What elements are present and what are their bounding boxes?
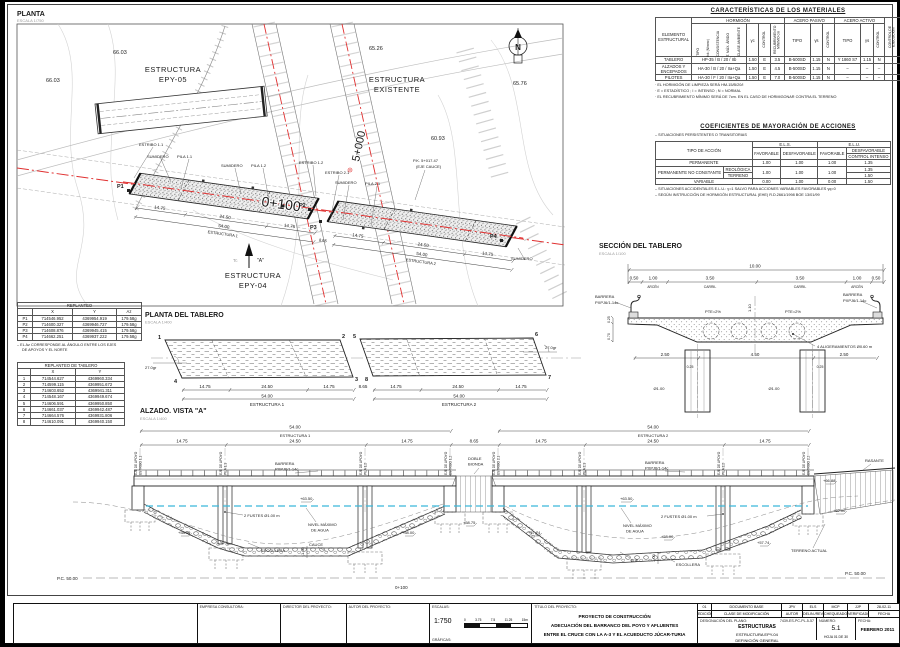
table-cell: 1.15	[810, 63, 823, 75]
svg-text:0.25: 0.25	[687, 365, 694, 369]
project-title-line: PROYECTO DE CONSTRUCCIÓN	[532, 612, 697, 621]
fecha-cell: FECHA: FEBRERO 2011	[856, 618, 899, 640]
coef-value: 0.00	[752, 179, 780, 185]
rev-value: MCP	[824, 604, 848, 611]
table-cell: 4.5	[770, 63, 784, 75]
table-cell: HA-30 / F / 20 / IIa+Qa	[692, 75, 747, 81]
field-label: ESCALAS:	[432, 605, 450, 609]
project-title-line: ENTRE EL CRUCE CON LA A-3 Y EL ACUEDUCTO…	[532, 630, 697, 639]
rotated-header: CONSISTENCIA	[717, 31, 721, 56]
slope-label: PTE=2%	[705, 309, 721, 314]
elevation-drawing: ALZADO. VISTA "A" ESCALA 1/400 54.00 EST…	[13, 402, 900, 598]
table-cell: P4	[18, 334, 33, 340]
field-label: GRÁFICAS:	[432, 638, 451, 642]
svg-text:PXPJ6/1-14c: PXPJ6/1-14c	[645, 466, 668, 471]
svg-text:BARRERA: BARRERA	[275, 461, 295, 466]
svg-text:3: 3	[355, 377, 358, 383]
epy05-label-1: ESTRUCTURA	[145, 65, 201, 74]
svg-text:ESTRIBO 1.1: ESTRIBO 1.1	[139, 455, 143, 475]
engineering-drawing-sheet: { "plan": { "title": "PLANTA", "scale": …	[0, 0, 900, 647]
table-cell: –	[861, 63, 874, 75]
svg-text:TERRENO ACTUAL: TERRENO ACTUAL	[791, 548, 828, 553]
svg-text:P3: P3	[310, 225, 317, 231]
svg-text:1.00: 1.00	[651, 553, 656, 562]
svg-text:EJE DE APOYO: EJE DE APOYO	[219, 451, 223, 475]
svg-text:0.50: 0.50	[872, 276, 881, 281]
materials-table-block: CARACTERÍSTICAS DE LOS MATERIALES ELEMEN…	[655, 8, 900, 100]
svg-text:14.75: 14.75	[515, 384, 527, 389]
drawing-sheet: PLANTA ESCALA 1/750	[5, 2, 897, 643]
signature-box	[14, 604, 198, 643]
rotated-header: RECUBRIMIENTO MÍNIMO cm	[774, 25, 781, 55]
existente-label-1: ESTRUCTURA	[369, 75, 425, 84]
svg-text:65.76: 65.76	[513, 81, 527, 87]
coefficients-block: COEFICIENTES DE MAYORACIÓN DE ACCIONES –…	[655, 124, 900, 199]
table-cell: 1.50	[746, 63, 759, 75]
svg-text:P.K. 5+017.47: P.K. 5+017.47	[413, 158, 439, 163]
svg-text:ESTRUCTURA 1: ESTRUCTURA 1	[280, 433, 311, 438]
replanteo-block: REPLANTEO X Y Az P1714546.9524369954.919…	[17, 302, 142, 354]
deck-cross-section	[628, 318, 883, 342]
col-header: TIPO fck (N/mm²) CONSISTENCIA T. MÁX. ÁR…	[692, 24, 747, 57]
field-label: NÚMERO:	[819, 619, 836, 623]
svg-text:"A": "A"	[257, 258, 264, 264]
field-label: DIRECTOR DEL PROYECTO:	[283, 605, 332, 609]
plan-scale: ESCALA 1/750	[17, 18, 44, 23]
svg-text:2.50: 2.50	[661, 352, 670, 357]
svg-text:BARRERA: BARRERA	[843, 292, 863, 297]
replanteo-table: REPLANTEO X Y Az P1714546.9524369954.919…	[17, 302, 142, 341]
svg-text:+66.88: +66.88	[823, 478, 836, 483]
barrier-left	[629, 295, 640, 318]
svg-text:1: 1	[158, 335, 161, 341]
deck-2-elevation	[492, 470, 814, 486]
col-header: DESFAVORABLE	[846, 147, 890, 153]
datum-station: 0+100	[395, 585, 408, 590]
svg-text:DOBLE: DOBLE	[468, 456, 482, 461]
elevation-labels: BARRERA PXPJ6/1-14c BARRERA PXPJ6/1-14c …	[178, 456, 884, 567]
svg-text:2.50: 2.50	[840, 352, 849, 357]
project-title-cell: TÍTULO DEL PROYECTO: PROYECTO DE CONSTRU…	[532, 604, 698, 643]
col-header: ELEMENTO ESTRUCTURAL	[656, 18, 692, 57]
col-header: CONTROL INTENSO	[846, 154, 890, 160]
elevation-scale: ESCALA 1/400	[140, 416, 167, 421]
svg-text:BARRERA: BARRERA	[645, 460, 665, 465]
svg-text:PXPJ6/1-14c: PXPJ6/1-14c	[275, 467, 298, 472]
materials-title: CARACTERÍSTICAS DE LOS MATERIALES	[655, 8, 900, 14]
svg-text:65.26: 65.26	[369, 46, 383, 52]
svg-text:4.50: 4.50	[751, 352, 760, 357]
plan-name-lines: ESTRUCTURAS ESTRUCTURA EPY-04 DEFINICIÓN…	[698, 624, 816, 644]
svg-text:ESTRIBO 1.1: ESTRIBO 1.1	[139, 142, 164, 147]
table-cell: PILOTES	[656, 75, 692, 81]
project-title-lines: PROYECTO DE CONSTRUCCIÓN ADECUACIÓN DEL …	[532, 612, 697, 640]
epy04-label-1: ESTRUCTURA	[225, 271, 281, 280]
svg-text:2 FUSTES Ø1.00 m: 2 FUSTES Ø1.00 m	[661, 514, 697, 519]
svg-text:24.50: 24.50	[261, 384, 273, 389]
rotated-header: fck (N/mm²)	[707, 39, 711, 57]
svg-text:0.50: 0.50	[630, 276, 639, 281]
table-cell: N	[823, 75, 834, 81]
col-header: CONTROL	[759, 24, 770, 57]
svg-text:ARCÉN: ARCÉN	[647, 284, 659, 289]
rev-label: AUTOR	[782, 611, 803, 618]
table-cell: –	[873, 75, 884, 81]
svg-text:8.65: 8.65	[359, 384, 368, 389]
project-title-line: ADECUACIÓN DEL BARRANCO DEL POYO Y AFLUE…	[532, 621, 697, 630]
table-cell: B-500SD	[784, 63, 810, 75]
table-cell: E	[759, 75, 770, 81]
svg-text:+58.00: +58.00	[661, 534, 674, 539]
epy04-label-2: EPY-04	[239, 281, 267, 290]
svg-text:14.75: 14.75	[535, 439, 547, 444]
svg-text:BIONDA: BIONDA	[468, 462, 484, 467]
svg-text:8.65: 8.65	[470, 439, 479, 444]
coefs-title: COEFICIENTES DE MAYORACIÓN DE ACCIONES	[655, 124, 900, 130]
svg-text:1.00: 1.00	[300, 546, 305, 555]
table-row: PILOTESHA-30 / F / 20 / IIa+Qa1.50E7.0B-…	[656, 75, 900, 81]
svg-text:3.50: 3.50	[706, 276, 715, 281]
svg-text:14.75: 14.75	[199, 384, 211, 389]
title-block: EMPRESA CONSULTORA: DIRECTOR DEL PROYECT…	[13, 603, 900, 644]
deck-plan-dim-lines	[182, 388, 549, 401]
col-header: TIPO DE ACCIÓN	[656, 141, 753, 160]
svg-text:P2: P2	[299, 203, 306, 209]
designacion-cell: DESIGNACIÓN DEL PLANO: 7439-ES-PC-PL-5-5…	[698, 618, 817, 640]
svg-text:PILA 2.1: PILA 2.1	[365, 181, 381, 186]
table-row: ALZADOS Y ENCEPADOSHA-30 / B / 20 / IIa+…	[656, 63, 900, 75]
epy05-label-2: EPY-05	[159, 75, 187, 84]
edge-depth-dims: 0.25 0.70	[607, 316, 613, 342]
table-cell: N	[823, 63, 834, 75]
elevation-dims: 54.00 ESTRUCTURA 1 54.00 ESTRUCTURA 2 14…	[176, 425, 771, 444]
table-cell: 1.50	[746, 75, 759, 81]
field-label: EMPRESA CONSULTORA:	[200, 605, 244, 609]
table-cell: I	[885, 63, 900, 75]
svg-text:RASANTE: RASANTE	[865, 458, 884, 463]
col-header: FAVORABLE	[752, 147, 780, 160]
plan-number: 5.1	[817, 625, 855, 632]
row-label: PERMANENTE NO CONSTANTE	[656, 166, 724, 179]
svg-text:+58.75: +58.75	[463, 520, 476, 525]
rotated-header: TIPO	[697, 48, 701, 56]
svg-text:54.00: 54.00	[289, 425, 301, 430]
svg-text:24.50: 24.50	[647, 439, 659, 444]
rev-value: JJP	[848, 604, 869, 611]
svg-text:14.75: 14.75	[759, 439, 771, 444]
rev-label: DELIN./REV.	[803, 611, 824, 618]
col-header: γs	[861, 24, 874, 57]
plan-date: FEBRERO 2011	[856, 627, 899, 632]
plan-view-drawing: PLANTA ESCALA 1/750	[13, 10, 568, 308]
svg-text:54.00: 54.00	[261, 394, 273, 399]
table-cell: 7.0	[770, 75, 784, 81]
coefs-subtitle: – SITUACIONES PERSISTENTES O TRANSITORIA…	[655, 133, 900, 139]
svg-text:54.00: 54.00	[647, 425, 659, 430]
right-ramp	[814, 470, 893, 514]
svg-text:0.70: 0.70	[607, 333, 611, 340]
svg-text:+57.74: +57.74	[757, 540, 770, 545]
coef-value: 1.00	[781, 166, 818, 179]
svg-text:5: 5	[353, 334, 356, 340]
svg-text:14.75: 14.75	[390, 384, 402, 389]
coefs-note: – SEGÚN INSTRUCCIÓN DE HORMIGÓN ESTRUCTU…	[655, 193, 900, 199]
table-cell: I	[885, 75, 900, 81]
rev-label: FECHA	[869, 611, 899, 618]
col-header: TIPO	[834, 24, 861, 57]
table-row: P4714662.2514369937.222179.58g	[18, 334, 142, 340]
graphic-scale-bar: 0 3.75 7.5 11.25 15m	[464, 618, 528, 628]
svg-text:PILA 2.2: PILA 2.2	[722, 463, 726, 475]
svg-text:PILA 1.2: PILA 1.2	[364, 463, 368, 475]
rev-value: DOCUMENTO BASE	[712, 604, 782, 611]
svg-text:(EJE CAUCE): (EJE CAUCE)	[416, 164, 442, 169]
rotated-header: T. MÁX. ÁRIDO	[727, 33, 731, 57]
svg-text:PXPJ6/1-14c: PXPJ6/1-14c	[843, 298, 866, 303]
svg-text:ARCÉN: ARCÉN	[851, 284, 863, 289]
svg-text:27.0gr: 27.0gr	[145, 365, 157, 370]
col-header: TIPO	[784, 24, 810, 57]
director-cell: DIRECTOR DEL PROYECTO:	[281, 604, 347, 643]
col-header: CONTROL	[873, 24, 884, 57]
table-cell: –	[873, 63, 884, 75]
plan-title: PLANTA	[17, 11, 45, 18]
rev-value: 28-02-11	[869, 604, 899, 611]
svg-text:0.25: 0.25	[817, 365, 824, 369]
svg-text:66.03: 66.03	[46, 78, 60, 84]
rev-label: VERIFICADO	[848, 611, 869, 618]
rotated-header: CLASE AMBIENTE	[738, 27, 742, 56]
rev-label: EDICIÓN	[698, 611, 712, 618]
col-header: FAVORABLE	[818, 147, 846, 160]
svg-text:+58.00: +58.00	[402, 530, 415, 535]
svg-text:ESCOLLERA: ESCOLLERA	[261, 548, 285, 553]
plan-name-line: ESTRUCTURAS	[698, 624, 816, 632]
svg-text:2: 2	[342, 334, 345, 340]
svg-text:N: N	[515, 43, 521, 52]
col-header: DESFAVORABLE	[781, 147, 818, 160]
autor-cell: AUTOR DEL PROYECTO:	[347, 604, 430, 643]
svg-text:P1: P1	[117, 184, 124, 190]
rev-label: CLASE DE MODIFICACIÓN	[712, 611, 782, 618]
svg-text:0.25: 0.25	[607, 316, 611, 323]
col-header: CONTROL DE EJECUCIÓN	[885, 18, 900, 57]
table-cell: B-500SD	[784, 75, 810, 81]
svg-text:ESTRIBO 1.2: ESTRIBO 1.2	[299, 160, 324, 165]
materials-table: ELEMENTO ESTRUCTURAL HORMIGÓN ACERO PASI…	[655, 17, 900, 81]
svg-text:3.50: 3.50	[796, 276, 805, 281]
rev-value: JPV	[782, 604, 803, 611]
table-cell: E	[759, 63, 770, 75]
rotated-header: CONTROL	[877, 31, 881, 48]
svg-text:SUMIDERO: SUMIDERO	[511, 256, 533, 261]
svg-text:NIVEL MÁXIMO: NIVEL MÁXIMO	[623, 523, 652, 528]
field-label: TÍTULO DEL PROYECTO:	[534, 605, 577, 609]
datum-label-right: P.C. 50.00	[845, 571, 866, 576]
slope-label: PTE=2%	[785, 309, 801, 314]
field-label: DESIGNACIÓN DEL PLANO:	[700, 619, 747, 623]
table-cell: Y 1860 S7	[834, 57, 861, 63]
coefficients-table: TIPO DE ACCIÓN E.L.S. E.L.U. FAVORABLE D…	[655, 141, 891, 186]
svg-text:CARRIL: CARRIL	[794, 285, 807, 289]
plan-name-line: DEFINICIÓN GENERAL	[698, 638, 816, 644]
section-scale: ESCALA 1/100	[599, 251, 626, 256]
deck-plan-title: PLANTA DEL TABLERO	[145, 312, 224, 319]
svg-text:ESCOLLERA: ESCOLLERA	[676, 562, 700, 567]
svg-text:EJE DE APOYO: EJE DE APOYO	[444, 451, 448, 475]
table-cell: 4369937.222	[73, 334, 117, 340]
svg-text:BARRERA: BARRERA	[595, 294, 615, 299]
scale-tick: 0	[464, 618, 466, 622]
svg-text:54.00: 54.00	[453, 394, 465, 399]
svg-text:14.75: 14.75	[401, 439, 413, 444]
svg-text:DE AGUA: DE AGUA	[311, 528, 329, 533]
svg-text:NIVEL MÁXIMO: NIVEL MÁXIMO	[308, 522, 337, 527]
svg-text:14.75: 14.75	[176, 439, 188, 444]
station-dot	[281, 204, 284, 207]
svg-text:4: 4	[174, 379, 178, 385]
deck-section-drawing: SECCIÓN DEL TABLERO ESCALA 1/100 10.00 0…	[593, 238, 900, 424]
scale-tick: 15m	[522, 618, 528, 622]
numero-cell: NÚMERO: 5.1 HOJA 01 DE 30	[817, 618, 856, 640]
svg-text:24.50: 24.50	[289, 439, 301, 444]
sheet-count: HOJA 01 DE 30	[817, 635, 855, 639]
table-cell: 1.15	[810, 75, 823, 81]
row-label: REOLÓGICA	[724, 166, 753, 172]
barrier-labels: BARRERAPXPJ6/1-14c BARRERAPXPJ6/1-14c	[595, 292, 877, 308]
table-cell: 179.58g	[117, 334, 142, 340]
plan-id-block: 01 DOCUMENTO BASE JPV ELS MCP JJP 28-02-…	[698, 604, 899, 643]
svg-text:14.75: 14.75	[323, 384, 335, 389]
col-header: γs	[810, 24, 823, 57]
svg-text:1.00: 1.00	[853, 276, 862, 281]
svg-text:66.03: 66.03	[113, 50, 127, 56]
svg-text:ESTRIBO 2.1: ESTRIBO 2.1	[497, 455, 501, 475]
svg-text:EJE DE APOYO: EJE DE APOYO	[717, 451, 721, 475]
svg-text:27.0gr: 27.0gr	[545, 345, 557, 350]
deck-plan-drawing: PLANTA DEL TABLERO ESCALA 1/400 12 34 56…	[141, 308, 587, 410]
svg-text:ESTRUCTURA 2: ESTRUCTURA 2	[638, 433, 669, 438]
escalas-cell: ESCALAS: 1:750 GRÁFICAS: 0 3.75 7.5 11.2…	[430, 604, 532, 643]
svg-text:+63.50: +63.50	[620, 496, 633, 501]
field-label: AUTOR DEL PROYECTO:	[349, 605, 391, 609]
aligeramientos-label: 4 ALIGERAMIENTOS Ø0.60 m	[817, 344, 873, 349]
elevation-title: ALZADO. VISTA "A"	[140, 408, 207, 415]
datum-label-left: P.C. 50.00	[57, 576, 78, 581]
svg-text:6: 6	[535, 332, 538, 338]
rev-label: CHEQUEADO	[824, 611, 848, 618]
barrier-right	[871, 295, 882, 318]
svg-text:24.50: 24.50	[452, 384, 464, 389]
table-cell: 714662.251	[33, 334, 73, 340]
svg-text:8: 8	[365, 377, 368, 383]
svg-text:PILA 1.1: PILA 1.1	[224, 463, 228, 475]
svg-text:PXPJ6/1-14c: PXPJ6/1-14c	[595, 300, 618, 305]
table-cell: –	[861, 75, 874, 81]
deck-1-parallelogram	[165, 340, 353, 378]
deck-1-elevation	[134, 470, 456, 486]
coef-value: 1.00	[752, 166, 780, 179]
svg-text:EJE DE APOYO: EJE DE APOYO	[802, 451, 806, 475]
rotated-header: CONTROL	[827, 31, 831, 48]
rev-value: 01	[698, 604, 712, 611]
materials-table-body: TABLEROHP-35 / B / 20 / IIb1.50E3.5B-500…	[656, 57, 900, 81]
svg-text:CARRIL: CARRIL	[704, 285, 717, 289]
coef-value: 1.50	[846, 179, 890, 185]
svg-text:10.00: 10.00	[749, 264, 761, 269]
section-top-dims: 10.00 0.50 1.00 3.50 3.50 1.00 0.50 ARCÉ…	[630, 264, 881, 290]
scale-value: 1:750	[434, 618, 452, 625]
svg-text:DE AGUA: DE AGUA	[626, 529, 644, 534]
rotated-header: CONTROL	[763, 31, 767, 48]
deck-plan-scale: ESCALA 1/400	[145, 320, 172, 325]
table-cell: HA-30 / B / 20 / IIa+Qa	[692, 63, 747, 75]
section-title: SECCIÓN DEL TABLERO	[599, 241, 683, 250]
deck-2-parallelogram	[360, 338, 546, 376]
plan-code: 7439-ES-PC-PL-5-57	[780, 619, 814, 623]
svg-text:PILA 1.2: PILA 1.2	[251, 163, 267, 168]
scale-tick: 11.25	[505, 618, 513, 622]
datum-line: P.C. 50.00 P.C. 50.00 0+100	[57, 571, 888, 590]
row-label: VARIABLE	[656, 179, 753, 185]
table-cell: –	[834, 63, 861, 75]
svg-text:+62.00: +62.00	[833, 508, 846, 513]
svg-text:CAUCE: CAUCE	[309, 542, 323, 547]
coef-value: 1.00	[818, 166, 846, 179]
scale-tick: 3.75	[475, 618, 481, 622]
svg-text:+63.50: +63.50	[300, 496, 313, 501]
svg-text:7: 7	[548, 375, 551, 381]
replanteo-note: DE APOYOS Y EL NORTE	[22, 348, 142, 354]
empresa-consultora-cell: EMPRESA CONSULTORA:	[198, 604, 281, 643]
svg-text:EJE: EJE	[631, 558, 639, 563]
table-cell: ALZADOS Y ENCEPADOS	[656, 63, 692, 75]
plan-designation-row: DESIGNACIÓN DEL PLANO: 7439-ES-PC-PL-5-5…	[698, 618, 899, 640]
scale-tick: 7.5	[491, 618, 495, 622]
svg-text:2 FUSTES Ø1.00 m: 2 FUSTES Ø1.00 m	[244, 513, 280, 518]
svg-text:Ø1.00: Ø1.00	[769, 386, 781, 391]
svg-text:SUMIDERO: SUMIDERO	[147, 154, 169, 159]
col-header: RECUBRIMIENTO MÍNIMO cm	[770, 24, 784, 57]
svg-text:EJE DE APOYO: EJE DE APOYO	[359, 451, 363, 475]
svg-text:+58.00: +58.00	[178, 530, 191, 535]
svg-text:SUMIDERO: SUMIDERO	[335, 180, 357, 185]
col-header: γc	[746, 24, 759, 57]
row-label: TERRENO	[724, 172, 753, 178]
coef-value: 0.00	[818, 179, 846, 185]
svg-text:+57.74: +57.74	[528, 530, 541, 535]
materials-note: · EL RECUBRIMIENTO MÍNIMO SERÁ DE 7cm. E…	[655, 95, 900, 101]
existente-label-2: EXISTENTE	[374, 85, 420, 94]
svg-text:Tc: Tc	[233, 258, 238, 263]
rev-value: ELS	[803, 604, 824, 611]
replanteo-body: P1714546.9524369954.919179.58gP2714600.3…	[18, 315, 142, 340]
svg-text:60.93: 60.93	[431, 136, 445, 142]
coef-value: 1.00	[781, 179, 818, 185]
rotated-header: CONTROL DE EJECUCIÓN	[889, 22, 896, 52]
table-cell: –	[834, 75, 861, 81]
svg-text:1.00: 1.00	[649, 276, 658, 281]
svg-text:ESTRIBO 2.1: ESTRIBO 2.1	[325, 170, 350, 175]
svg-text:SUMIDERO: SUMIDERO	[221, 163, 243, 168]
svg-text:Ø1.00: Ø1.00	[654, 386, 666, 391]
revision-table: 01 DOCUMENTO BASE JPV ELS MCP JJP 28-02-…	[698, 604, 899, 618]
svg-text:PILA 1.1: PILA 1.1	[177, 154, 193, 159]
svg-text:EJE DE APOYO: EJE DE APOYO	[578, 451, 582, 475]
field-label: FECHA:	[858, 619, 871, 623]
svg-text:P4: P4	[490, 234, 498, 240]
col-header: CONTROL	[823, 24, 834, 57]
